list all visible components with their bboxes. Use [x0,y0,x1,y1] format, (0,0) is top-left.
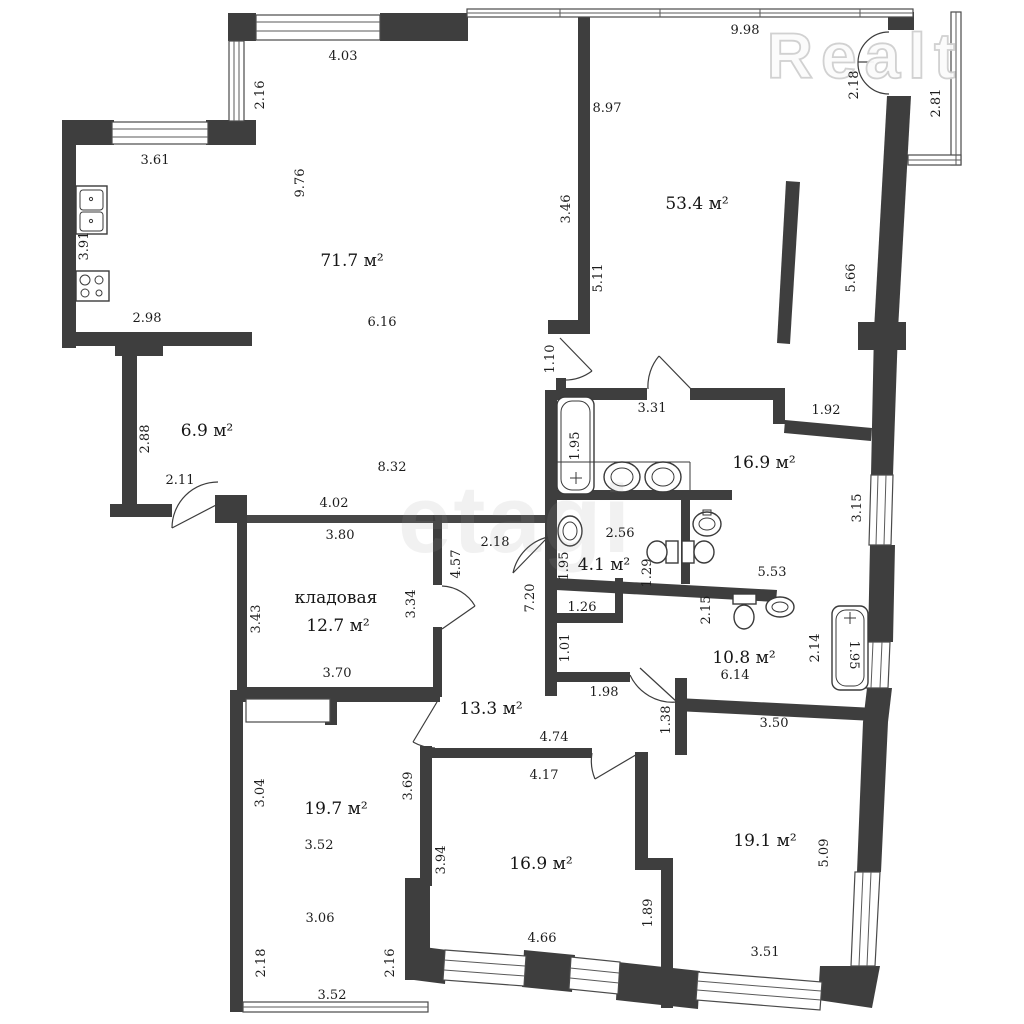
door-room197 [413,702,437,748]
dimension-label: 3.80 [326,528,355,543]
dimension-label: 2.18 [847,71,862,100]
balcony-bottom-glazing [243,1002,428,1012]
dimension-label: 3.52 [305,838,334,853]
room-area-label: 19.1 м² [733,831,796,851]
basin-icon-2 [645,462,681,492]
dimension-label: 3.51 [751,945,780,960]
toilet-108-icon [733,594,756,629]
dimension-label: 1.38 [659,706,674,735]
dimension-label: 8.97 [593,101,622,116]
window-right-1 [869,475,893,545]
window-living-top [256,15,380,40]
dimension-label: 3.43 [249,605,264,634]
door-storage [442,586,475,629]
floor-plan: Realt etagi 71.7 м²53.4 м²6.9 м²16.9 м²4… [0,0,1024,1024]
door-110 [560,338,592,380]
dimension-label: 2.16 [253,81,268,110]
dimension-label: 4.03 [329,49,358,64]
dimension-label: 1.95 [846,641,861,670]
room-area-label: 4.1 м² [578,555,630,575]
floor-plan-svg: Realt etagi 71.7 м²53.4 м²6.9 м²16.9 м²4… [0,0,1024,1024]
dimension-label: 2.18 [254,949,269,978]
sink-108-icon [766,597,794,617]
dimension-label: 1.95 [557,552,572,581]
dimension-label: 9.98 [731,23,760,38]
room-area-label: 13.3 м² [459,699,522,719]
dimension-label: 3.70 [323,666,352,681]
dimension-label: 6.14 [721,668,750,683]
dimension-label: 4.17 [530,768,559,783]
dimension-label: 1.01 [558,634,573,663]
window-bottom-c [696,972,822,1010]
dimension-label: 2.14 [808,634,823,663]
dimension-label: 2.56 [606,526,635,541]
wc-sink-icon [693,510,721,536]
dimension-label: 2.98 [133,311,162,326]
dimension-label: 3.61 [141,153,170,168]
dimension-label: 3.94 [434,846,449,875]
dimension-label: 2.15 [699,596,714,625]
dimension-label: 4.74 [540,730,569,745]
room-area-label: 12.7 м² [306,616,369,636]
dimension-label: 4.57 [449,550,464,579]
dimension-label: 3.34 [404,590,419,619]
dimension-label: 2.18 [481,535,510,550]
door-hallway-69 [172,482,218,528]
terrace-glazing-top [467,9,913,17]
dimension-label: 2.88 [138,425,153,454]
dimension-label: 3.04 [253,779,268,808]
dimension-label: 3.69 [401,772,416,801]
dimension-label: 2.11 [166,473,195,488]
room-area-label: 71.7 м² [320,251,383,271]
dimension-label: 3.91 [77,232,92,261]
window-right-3 [851,872,880,966]
dimension-label: 1.29 [640,559,655,588]
kitchen-sink-icon [76,186,107,234]
dimension-label: 2.81 [929,89,944,118]
dimension-label: 1.89 [641,899,656,928]
window-bottom-a [443,950,526,986]
dimension-label: 1.26 [568,600,597,615]
dimension-label: 5.11 [591,264,606,293]
dimension-label: 5.09 [817,839,832,868]
dimension-label: 4.02 [320,496,349,511]
dimension-label: 2.16 [383,949,398,978]
dimension-label: 8.32 [378,460,407,475]
door-room534 [648,356,692,390]
dimension-label: 3.52 [318,988,347,1003]
room-area-label: 6.9 м² [181,421,233,441]
window-kitchen-top [112,122,208,144]
dimension-label: 1.10 [543,345,558,374]
room-area-label: 16.9 м² [732,453,795,473]
stove-icon [76,271,109,301]
dimension-label: 7.20 [523,584,538,613]
room-area-label: 19.7 м² [304,799,367,819]
dimension-label: 3.15 [850,494,865,523]
door-room169-bottom [591,753,639,779]
dimension-label: 5.66 [844,264,859,293]
dimension-label: 5.53 [758,565,787,580]
closet-niche [246,699,330,722]
dimension-label: 3.50 [760,716,789,731]
bidet-icon [682,541,714,563]
dimension-label: 1.92 [812,403,841,418]
room-area-label: 10.8 м² [712,648,775,668]
window-bottom-b [569,957,620,994]
dimension-label: 3.46 [559,195,574,224]
room-area-label: 16.9 м² [509,854,572,874]
room-area-label: 53.4 м² [665,194,728,214]
watermark-realt: Realt [767,20,964,92]
room-area-label: кладовая [295,588,378,608]
dimension-label: 4.66 [528,931,557,946]
dimension-label: 1.98 [590,685,619,700]
window-left-vertical [229,41,244,121]
dimension-label: 9.76 [293,169,308,198]
dimension-label: 3.31 [638,401,667,416]
dimension-label: 1.95 [568,432,583,461]
dimension-label: 6.16 [368,315,397,330]
door-vestibule [630,668,677,702]
dimension-label: 3.06 [306,911,335,926]
